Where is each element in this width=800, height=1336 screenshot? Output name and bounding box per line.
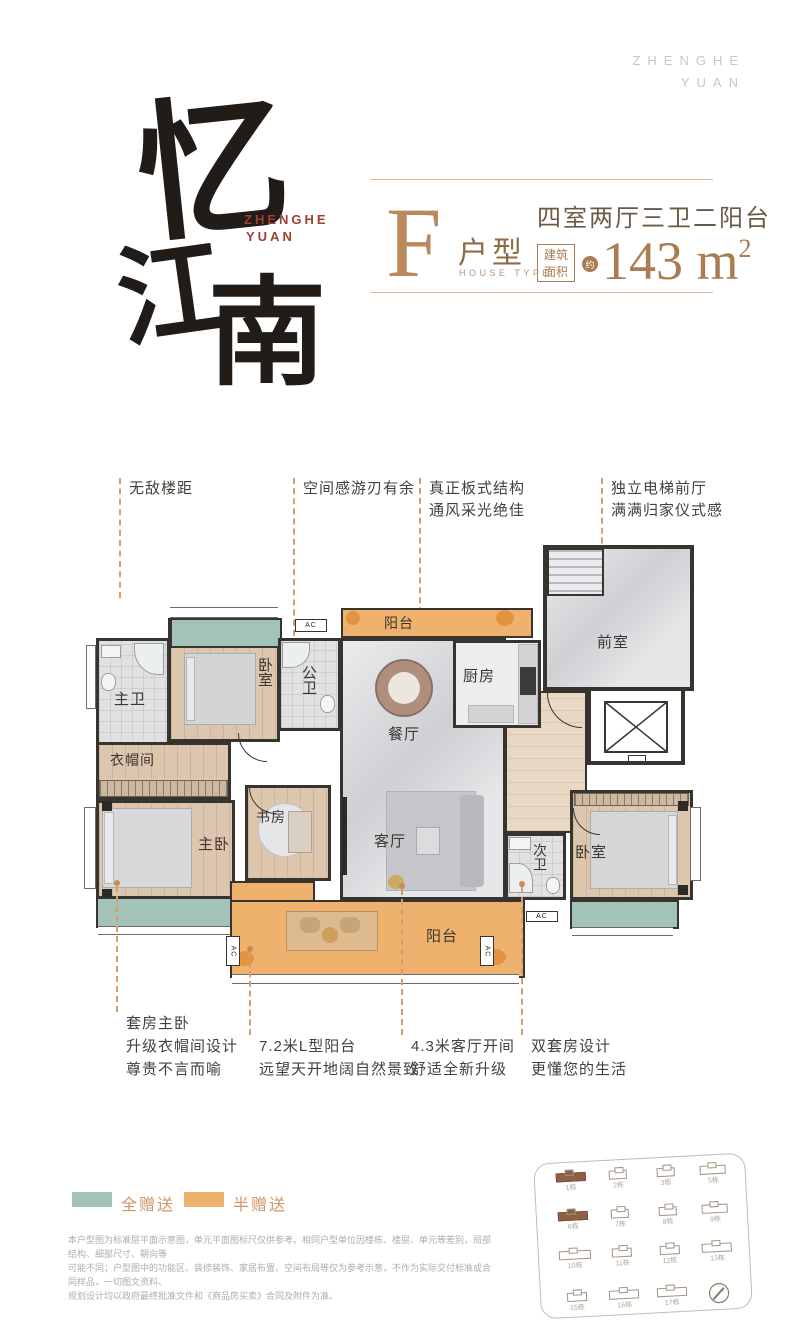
house-type-label: 户型 (458, 228, 526, 272)
room-label-living: 客厅 (374, 830, 406, 851)
building-cell: 17栋 (648, 1286, 696, 1308)
callout-top-1: 无敌楼距 (129, 478, 193, 500)
room-label-master-bedroom: 主卧 (198, 833, 230, 854)
stairwell (547, 548, 604, 596)
nightstand (678, 885, 688, 895)
building-icon (557, 1211, 587, 1222)
dining-table-center (388, 672, 420, 704)
floorplan-poster: ZHENGHE YUAN 忆 江 南 ZHENGHE YUAN F 户型 HOU… (0, 0, 800, 1336)
building-cell: 2栋 (594, 1169, 642, 1191)
room-label-second-bath: 次卫 (528, 843, 548, 871)
building-cell: 7栋 (596, 1208, 644, 1230)
tv-console (342, 797, 347, 875)
callout-top-4: 独立电梯前厅 满满归家仪式感 (611, 478, 723, 522)
bay-window (170, 607, 278, 618)
floor-cushion (340, 917, 360, 933)
siteplan-row: 1栋 2栋 3栋 5栋 (547, 1164, 738, 1194)
legend-swatch-half-gift (184, 1192, 224, 1207)
room-label-kitchen: 厨房 (463, 665, 495, 686)
gift-strip-bedroom-top (170, 618, 282, 648)
building-icon (702, 1242, 732, 1253)
room-label-balcony-top: 阳台 (384, 613, 414, 633)
watermark-line2: YUAN (632, 72, 745, 94)
side-window (84, 807, 96, 889)
callout-bottom-4: 双套房设计 更懂您的生活 (531, 1035, 627, 1081)
cloakroom-wardrobe (99, 780, 228, 797)
building-icon (702, 1204, 728, 1214)
building-icon (555, 1172, 585, 1183)
side-window (690, 807, 701, 881)
legend-swatch-full-gift (72, 1192, 112, 1207)
room-label-cloakroom: 衣帽间 (110, 750, 155, 770)
toilet (320, 695, 335, 713)
siteplan-row: 15栋 16栋 17栋 (553, 1281, 744, 1314)
disclaimer-text: 本户型图为标准层平面示意图，单元平面图标尺仅供参考。相同户型单位因楼栋、楼层、单… (68, 1233, 498, 1303)
bed-pillows (104, 812, 114, 884)
area-superscript: 2 (739, 234, 752, 263)
building-cell: 8栋 (644, 1205, 692, 1227)
title-rule-top (370, 179, 713, 180)
room-label-master-bath: 主卫 (114, 688, 146, 709)
bedroom-wardrobe (574, 793, 689, 806)
balcony-round-table (322, 927, 338, 943)
corner-watermark: ZHENGHE YUAN (632, 50, 745, 94)
room-label-front-room: 前室 (597, 631, 629, 652)
building-cell: 5栋 (689, 1164, 737, 1186)
compass-icon (708, 1282, 731, 1305)
area-value: 143 m2 (602, 234, 752, 288)
building-cell: 16栋 (600, 1289, 648, 1311)
building-icon (609, 1170, 627, 1180)
building-icon (659, 1245, 679, 1255)
building-icon (700, 1165, 726, 1175)
bed-pillows (186, 657, 195, 721)
window-sill (232, 974, 519, 984)
ac-unit-right: AC (480, 936, 494, 966)
room-label-public-bath: 公卫 (298, 665, 319, 695)
logo-subtitle-line1: ZHENGHE (244, 211, 329, 228)
bed-master (102, 808, 192, 888)
building-icon (612, 1248, 632, 1258)
compass-cell (695, 1281, 744, 1306)
building-icon (658, 1206, 676, 1216)
building-cell: 11栋 (598, 1247, 646, 1269)
nightstand (102, 801, 112, 811)
stove (520, 667, 536, 695)
balcony-plant (346, 611, 360, 625)
bathroom-sink (101, 645, 121, 658)
floor-plan: 前室 阳台 餐厅 客厅 厨房 (88, 545, 694, 993)
callout-line-bottom-3 (401, 889, 403, 1035)
area-badge-line1: 建筑 (538, 247, 574, 264)
watermark-line1: ZHENGHE (632, 50, 745, 72)
site-plan-keymap: 1栋 2栋 3栋 5栋 6栋 7栋 8栋 9栋 10栋 11栋 12栋 13栋 … (533, 1153, 753, 1320)
kitchen-sink-counter (468, 705, 514, 723)
room-label-bedroom-top: 卧室 (254, 657, 275, 687)
balcony-plant (496, 610, 514, 626)
building-cell: 15栋 (553, 1291, 601, 1313)
ac-unit-top: AC (295, 619, 327, 632)
side-window (86, 645, 96, 709)
toilet (546, 877, 560, 894)
calligraphy-char-nan: 南 (208, 276, 326, 394)
ac-unit-bottom-right: AC (526, 911, 558, 922)
building-icon (567, 1292, 587, 1302)
callout-top-2: 空间感游刃有余 (303, 478, 415, 500)
callout-line-bottom-4 (521, 887, 523, 1035)
siteplan-row: 6栋 7栋 8栋 9栋 (549, 1203, 740, 1233)
coffee-table (416, 827, 440, 855)
building-cell: 9栋 (691, 1203, 739, 1225)
logo-subtitle-line2: YUAN (246, 228, 295, 245)
room-label-dining: 餐厅 (388, 723, 420, 744)
sofa (460, 795, 484, 887)
house-type-letter: F (386, 193, 442, 293)
elevator-icon (604, 701, 668, 753)
building-icon (611, 1209, 629, 1219)
building-icon (609, 1289, 639, 1300)
building-icon (558, 1250, 590, 1261)
callout-line-bottom-1 (116, 886, 118, 1012)
bedroom-door-arc (238, 733, 267, 762)
callout-bottom-2: 7.2米L型阳台 远望天开地阔自然景致 (259, 1035, 419, 1081)
nightstand (678, 801, 688, 811)
bed-pillows (668, 815, 677, 885)
room-label-bedroom-right: 卧室 (575, 841, 607, 862)
legend-label-half-gift: 半赠送 (233, 1191, 287, 1215)
callout-top-3: 真正板式结构 通风采光绝佳 (429, 478, 525, 522)
callout-line-bottom-2 (249, 952, 251, 1035)
gift-strip-bedroom-right (570, 900, 679, 929)
building-cell: 1栋 (547, 1171, 595, 1193)
approx-circle: 约 (582, 256, 598, 272)
building-icon (656, 1167, 674, 1177)
room-label-balcony-bottom: 阳台 (426, 925, 458, 946)
building-cell: 13栋 (693, 1242, 741, 1264)
room-layout-text: 四室两厅三卫二阳台 (537, 198, 771, 233)
window-sill (98, 926, 233, 935)
building-cell: 3栋 (641, 1167, 689, 1189)
area-badge-line2: 面积 (538, 264, 574, 281)
elevator-door-mark (628, 755, 646, 762)
window-sill (572, 927, 673, 936)
building-cell: 12栋 (646, 1244, 694, 1266)
floor-cushion (300, 917, 320, 933)
study-desk (288, 811, 312, 853)
legend-label-full-gift: 全赠送 (121, 1191, 175, 1215)
area-badge: 建筑 面积 (537, 244, 575, 282)
callout-bottom-1: 套房主卧 升级衣帽间设计 尊贵不言而喻 (126, 1012, 238, 1081)
siteplan-row: 10栋 11栋 12栋 13栋 (551, 1242, 742, 1272)
building-cell: 10栋 (551, 1249, 599, 1271)
ac-unit-left: AC (226, 936, 240, 966)
building-cell: 6栋 (549, 1210, 597, 1232)
building-icon (657, 1287, 687, 1298)
callout-bottom-3: 4.3米客厅开间 舒适全新升级 (411, 1035, 515, 1081)
